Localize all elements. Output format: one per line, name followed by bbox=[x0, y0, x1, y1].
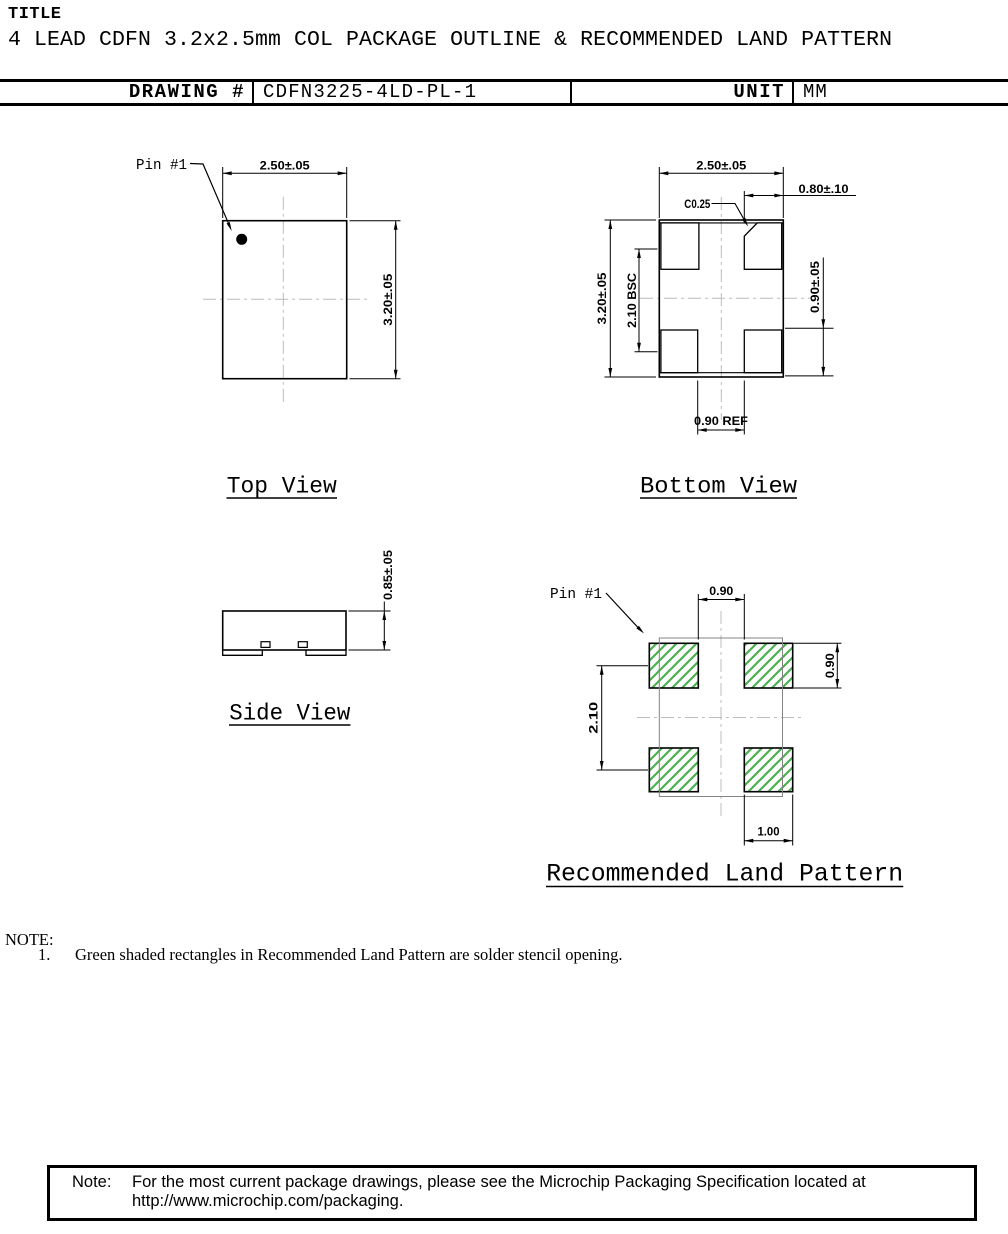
bottom-view-drawing: 2.50±.05 0.80±.10 C0.25 3.20±.05 bbox=[595, 159, 856, 500]
bottom-view-width-dimension bbox=[659, 167, 783, 218]
top-view-width-dim-text: 2.50±.05 bbox=[260, 159, 310, 173]
stencil-pad-top-right bbox=[744, 643, 792, 688]
side-view-height-dim-text: 0.85±.05 bbox=[381, 550, 395, 600]
side-view-height-dimension bbox=[349, 602, 391, 651]
title-label: TITLE bbox=[8, 5, 62, 24]
top-view-drawing: 2.50±.05 3.20±.05 Pin #1 Top View bbox=[136, 158, 401, 500]
land-pattern-drawing: 0.90 Pin #1 2.10 0.90 bbox=[546, 584, 903, 889]
land-pattern-pin1-label: Pin #1 bbox=[550, 587, 602, 603]
bottom-view-pad-bottom-right bbox=[744, 330, 781, 373]
bottom-view-width-dim-text: 2.50±.05 bbox=[696, 159, 746, 173]
side-view-drawing: 0.85±.05 Side View bbox=[223, 550, 395, 727]
bottom-view-center-gap-dim-text: 0.90 REF bbox=[694, 414, 748, 428]
side-view-lead-tip-left bbox=[261, 642, 270, 648]
unit-label: UNIT bbox=[572, 82, 794, 103]
package-drawing-canvas: 2.50±.05 3.20±.05 Pin #1 Top View bbox=[0, 120, 1008, 910]
note-item-text: Green shaded rectangles in Recommended L… bbox=[75, 945, 623, 964]
land-pattern-pitch-y-dim-text: 2.10 bbox=[587, 701, 601, 733]
bottom-view-pad-top-right-chamfered bbox=[744, 223, 781, 269]
stencil-pad-bottom-right bbox=[744, 748, 792, 792]
footer-note-line1: For the most current package drawings, p… bbox=[132, 1173, 974, 1192]
bottom-view-pitch-dim-text: 2.10 BSC bbox=[625, 273, 639, 328]
drawing-number-label: DRAWING # bbox=[0, 82, 254, 103]
stencil-pad-bottom-left bbox=[649, 748, 698, 792]
land-pattern-title: Recommended Land Pattern bbox=[546, 860, 903, 889]
land-pattern-pin1-leader-arrow bbox=[606, 593, 644, 634]
drawing-number-value: CDFN3225-4LD-PL-1 bbox=[254, 82, 572, 103]
top-view-pin1-label: Pin #1 bbox=[136, 158, 187, 174]
footer-note-box: Note: For the most current package drawi… bbox=[47, 1165, 977, 1221]
unit-value: MM bbox=[794, 82, 1008, 103]
land-pattern-gap-x-dim-text: 0.90 bbox=[709, 584, 733, 598]
top-view-height-dim-text: 3.20±.05 bbox=[381, 273, 395, 325]
note-item-number: 1. bbox=[38, 945, 75, 965]
bottom-view-pad-bottom-left bbox=[661, 330, 698, 373]
bottom-view-lead-height-dim-text: 0.90±.05 bbox=[808, 261, 822, 313]
note-item: 1.Green shaded rectangles in Recommended… bbox=[38, 945, 623, 965]
drawing-sheet: TITLE 4 LEAD CDFN 3.2x2.5mm COL PACKAGE … bbox=[0, 0, 1008, 1234]
footer-note-text: For the most current package drawings, p… bbox=[132, 1173, 974, 1218]
stencil-pad-top-left bbox=[649, 643, 698, 688]
side-view-package-body bbox=[223, 611, 346, 650]
bottom-view-pad-top-left bbox=[661, 223, 699, 269]
drawing-title: 4 LEAD CDFN 3.2x2.5mm COL PACKAGE OUTLIN… bbox=[8, 28, 892, 52]
top-view-width-dimension bbox=[223, 167, 347, 218]
pin1-indicator-dot bbox=[236, 234, 247, 245]
land-pattern-pad-width-dim-text: 1.00 bbox=[758, 825, 780, 839]
bottom-view-height-dim-text: 3.20±.05 bbox=[595, 272, 609, 324]
top-view-title: Top View bbox=[227, 474, 337, 500]
side-view-lead-tip-right bbox=[298, 642, 307, 648]
bottom-view-title: Bottom View bbox=[640, 474, 797, 500]
side-view-title: Side View bbox=[229, 701, 350, 727]
land-pattern-pad-height-dim-text: 0.90 bbox=[823, 653, 837, 678]
bottom-view-lead-width-dim-text: 0.80±.10 bbox=[799, 182, 849, 196]
footer-note-label: Note: bbox=[72, 1173, 132, 1218]
footer-note-line2: http://www.microchip.com/packaging. bbox=[132, 1192, 974, 1211]
title-block-table: DRAWING # CDFN3225-4LD-PL-1 UNIT MM bbox=[0, 79, 1008, 106]
bottom-view-chamfer-callout-text: C0.25 bbox=[684, 197, 710, 211]
